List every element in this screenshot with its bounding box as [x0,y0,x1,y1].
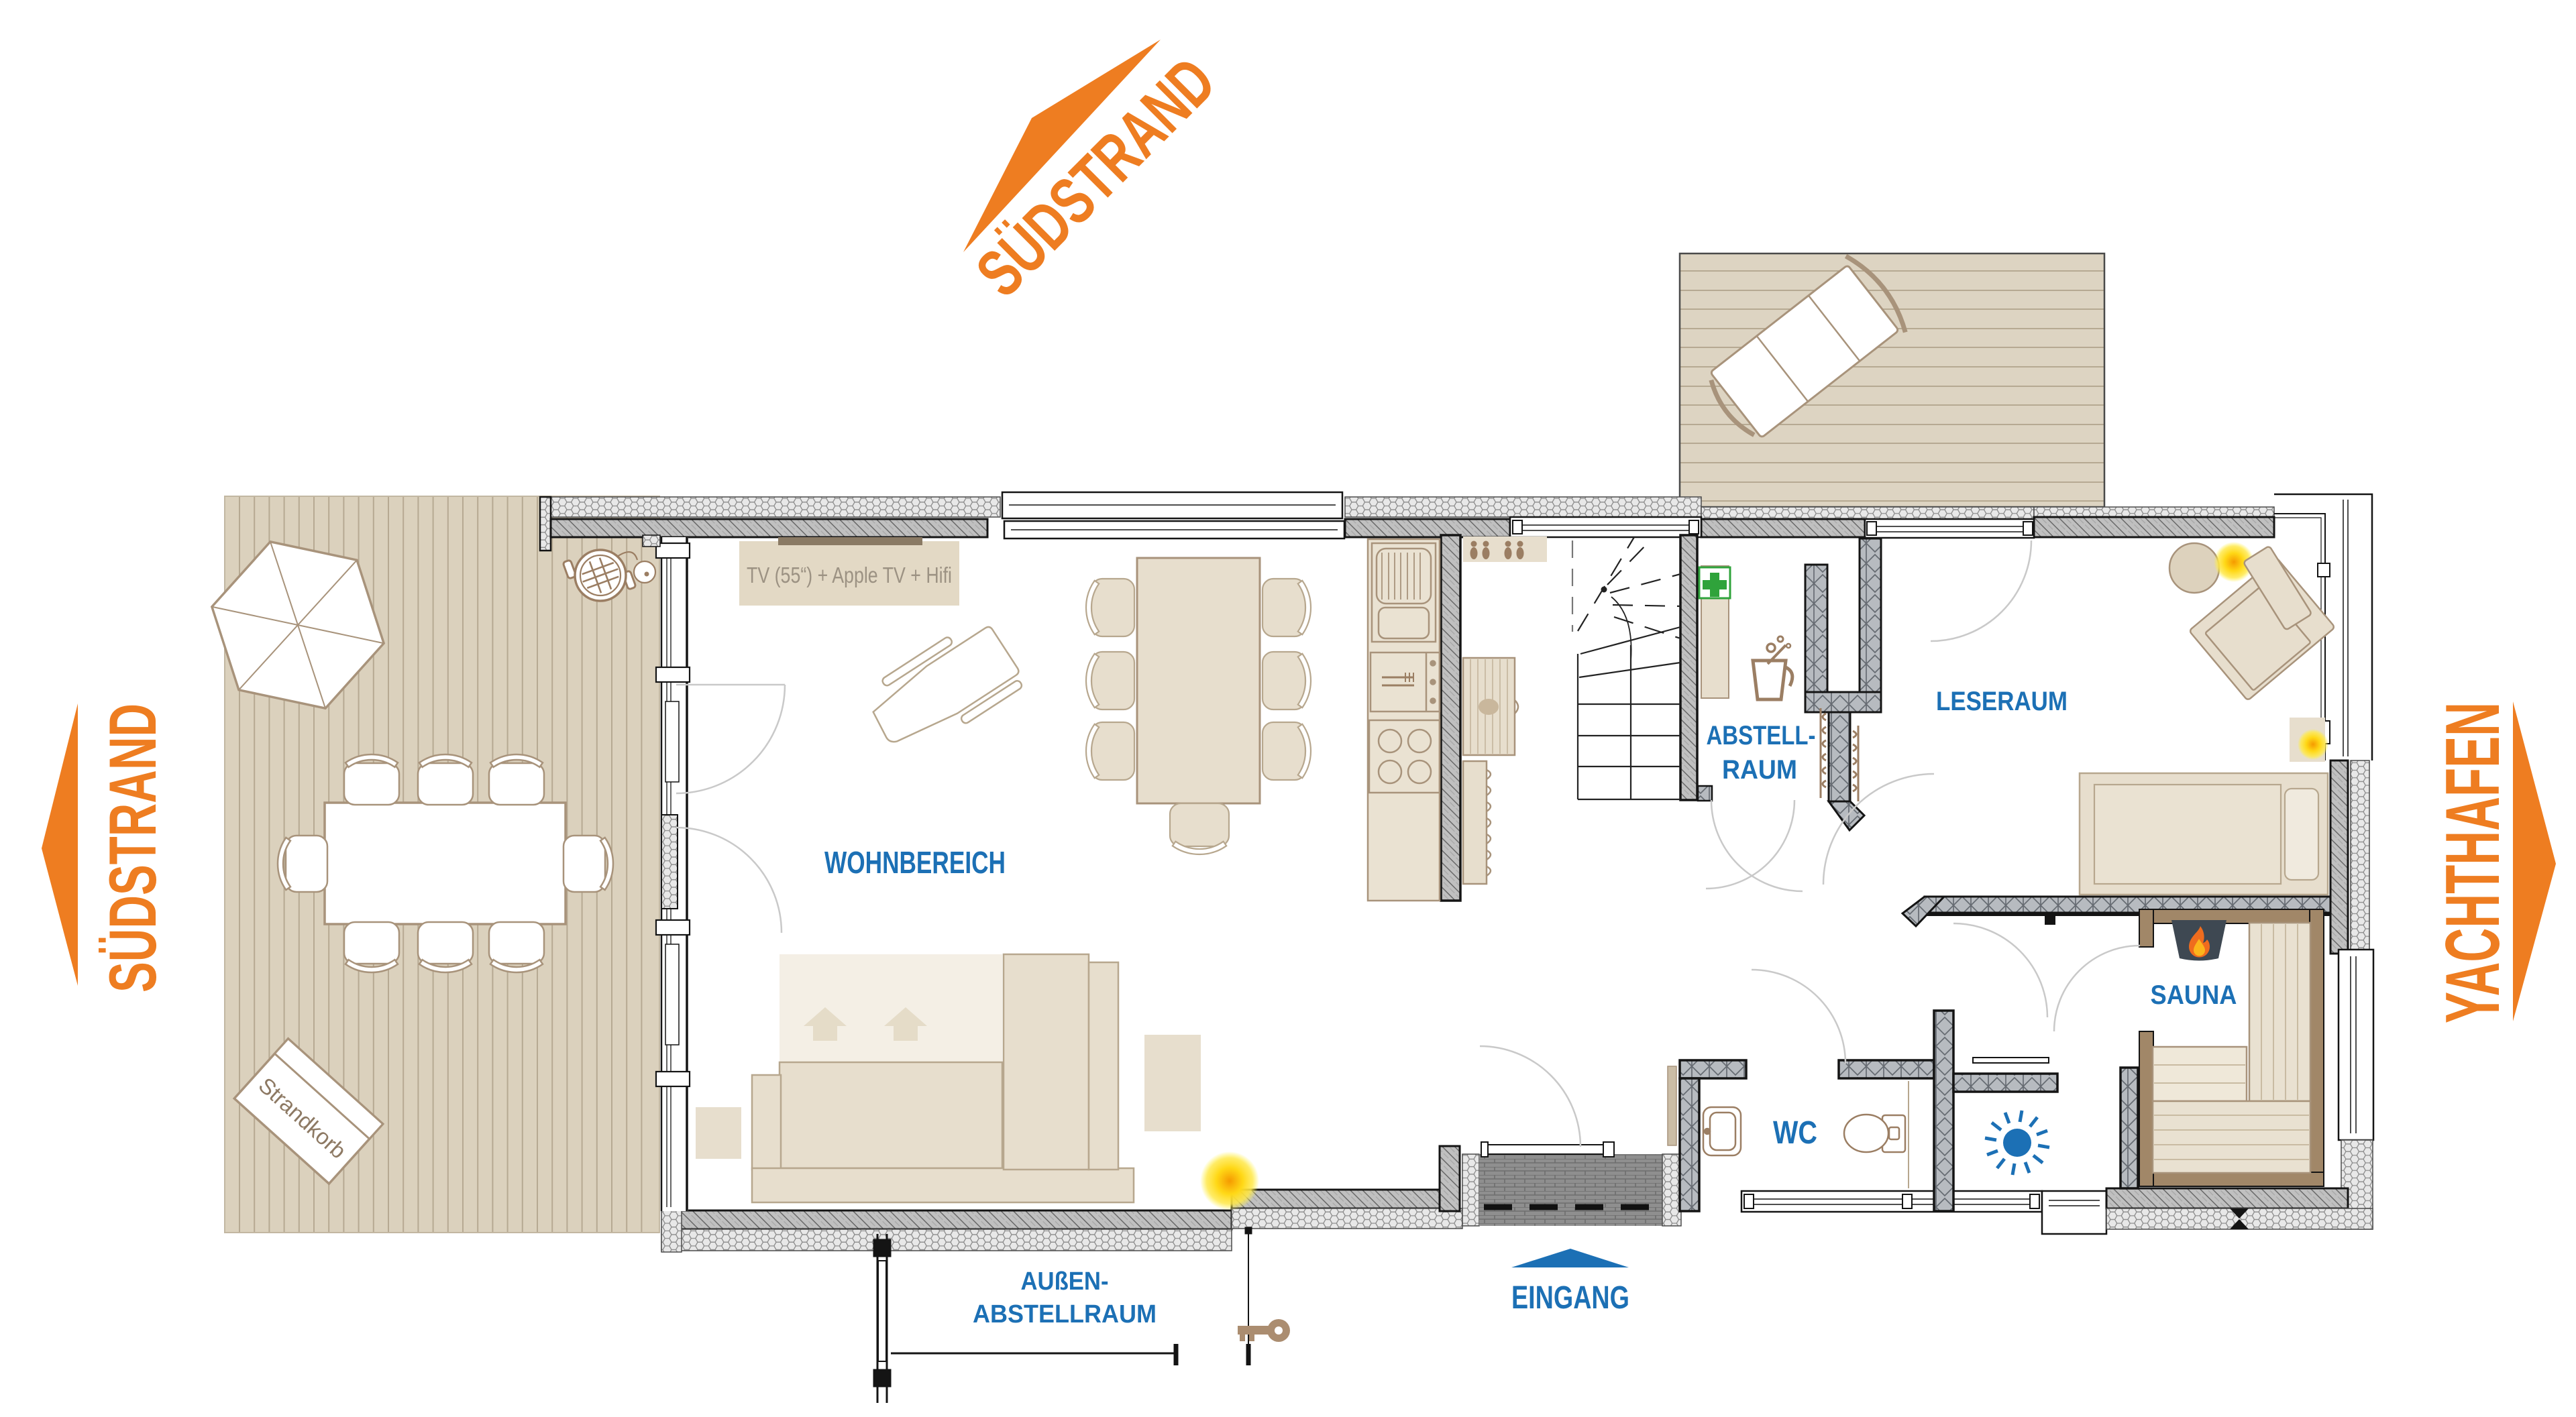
svg-text:YACHTHAFEN: YACHTHAFEN [2430,702,2516,1023]
svg-text:LESERAUM: LESERAUM [1936,687,2068,716]
svg-text:AUßEN-: AUßEN- [1021,1267,1109,1296]
svg-text:WC: WC [1773,1115,1817,1151]
svg-text:RAUM: RAUM [1722,755,1797,785]
svg-text:ABSTELL-: ABSTELL- [1707,721,1816,750]
svg-text:EINGANG: EINGANG [1511,1280,1629,1316]
svg-text:SÜDSTRAND: SÜDSTRAND [95,703,170,993]
svg-text:WOHNBEREICH: WOHNBEREICH [824,845,1006,880]
svg-text:SAUNA: SAUNA [2151,980,2237,1010]
svg-text:TV (55“) + Apple TV + Hifi: TV (55“) + Apple TV + Hifi [747,563,952,587]
svg-text:ABSTELLRAUM: ABSTELLRAUM [973,1300,1157,1328]
